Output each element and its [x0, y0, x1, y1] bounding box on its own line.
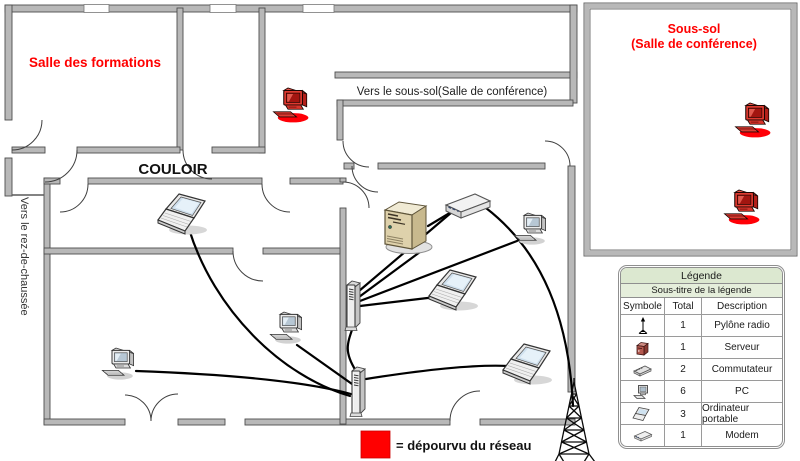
legend-title: Légende [621, 268, 782, 284]
legend-row-pylone: 1 Pylône radio [621, 315, 782, 337]
radio-mast-icon [632, 317, 654, 334]
label-sous-sol-2: (Salle de conférence) [631, 37, 757, 51]
switch-1 [345, 281, 360, 331]
legend-row-modem: 1 Modem [621, 425, 782, 446]
label-couloir: COULOIR [138, 161, 207, 178]
laptop-corridor [158, 194, 207, 235]
legend-header-row: Symbole Total Description [621, 298, 782, 315]
switch-icon [632, 361, 654, 378]
legend-row-commutateur: 2 Commutateur [621, 359, 782, 381]
link-pcb-switch2 [136, 371, 351, 394]
link-server-modem [428, 211, 453, 226]
legend-subtitle: Sous-titre de la légende [621, 284, 782, 298]
label-no-network: = dépourvu du réseau [396, 438, 532, 453]
network-floorplan-diagram: Salle des formations COULOIR Vers le rez… [0, 0, 800, 461]
laptop-icon [632, 406, 654, 423]
label-vers-sous-sol: Vers le sous-sol(Salle de conférence) [357, 86, 548, 98]
laptop-center [429, 270, 478, 311]
modem [446, 194, 490, 218]
label-sous-sol-1: Sous-sol [668, 22, 721, 36]
server-icon [632, 339, 654, 356]
legend-col-description: Description [702, 298, 782, 314]
legend-row-serveur: 1 Serveur [621, 337, 782, 359]
pc-icon [632, 383, 654, 400]
legend-col-symbol: Symbole [621, 298, 665, 314]
label-vers-rez: Vers le rez-de-chaussée [18, 197, 30, 316]
pc-room-left-2 [102, 348, 133, 380]
switch-2 [350, 367, 365, 417]
legend-row-portable: 3 Ordinateur portable [621, 403, 782, 425]
pc-room-right [514, 213, 545, 245]
legend-row-pc: 6 PC [621, 381, 782, 403]
label-salle-formations: Salle des formations [29, 55, 161, 70]
pc-room-left-1 [270, 312, 301, 344]
modem-icon [632, 427, 654, 444]
no-network-swatch [361, 431, 390, 458]
link-switch1-laptop2 [360, 297, 436, 306]
server [385, 202, 432, 254]
link-switch1-switch2 [348, 327, 356, 371]
legend-col-total: Total [665, 298, 702, 314]
pc-red-landing [274, 88, 309, 122]
legend: Légende Sous-titre de la légende Symbole… [618, 265, 785, 449]
laptop-bottom-right [503, 344, 552, 385]
link-switch2-laptop3 [366, 366, 509, 379]
